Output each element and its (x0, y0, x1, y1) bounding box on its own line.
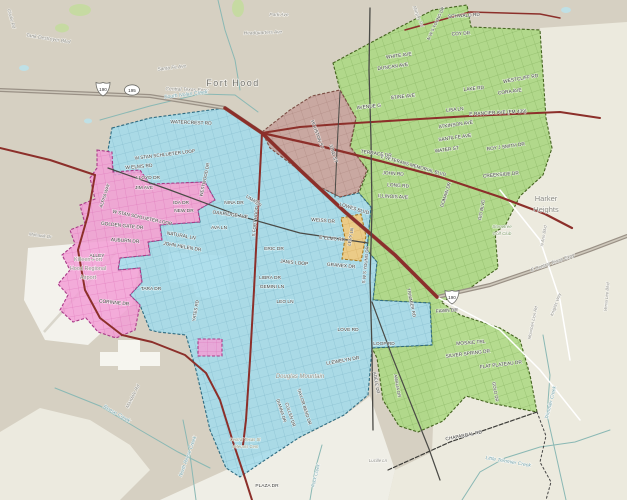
pond-1 (84, 119, 92, 124)
map-label-golf-club: Golf Club (493, 231, 512, 236)
map-label-fort-hood: Fort Hood (206, 78, 260, 88)
park-area-0 (69, 4, 91, 16)
map-label-loop-rd: LOOP RD (373, 341, 395, 347)
map-label-nina-dr: NINA DR (224, 200, 244, 206)
map-label-tara-dr: TARA DR (141, 286, 162, 292)
map-label-eric-dr: ERIC DR (264, 246, 284, 252)
highway-shield-number: 195 (128, 88, 136, 93)
map-label-alley: ALLEY (90, 253, 106, 259)
map-label-park-ave: Park Ave (269, 12, 289, 18)
map-label-heights: Heights (533, 205, 559, 214)
map-label-airport: Airport (80, 275, 97, 281)
district-pink-annex-streets (198, 339, 222, 356)
map-label-plaza-dr: PLAZA DR (255, 483, 279, 489)
map-label-stonetree: Stonetree (492, 224, 512, 229)
highway-shield-number: 190 (99, 87, 107, 92)
map-label-veterans-cem: Veterans Cem (232, 444, 259, 449)
highway-shield-number: 190 (448, 295, 456, 300)
map-label-hood-regional: Hood Regional (70, 266, 106, 272)
map-label-harker: Harker (535, 194, 558, 203)
district-pink-annex[interactable] (198, 339, 222, 356)
map-label-leo-ln: LEO LN (276, 299, 294, 305)
map-label-jim-ave: JIM AVE (135, 185, 153, 191)
map-label-new-dr: NEW DR (174, 208, 194, 214)
map-label-gemini-ln: GEMINI LN (260, 284, 285, 290)
map-label-central-texas-st: Central Texas St (230, 437, 262, 442)
pond-2 (561, 7, 571, 13)
highway-shield-195-1: 195 (125, 85, 140, 95)
map-label-ava-ln: AVA LN (211, 225, 228, 231)
map-label-ida-dr: IDA DR (173, 200, 190, 206)
park-area-1 (55, 24, 69, 33)
map-canvas[interactable]: Fort HoodCentral Texas ExpyE Central Tex… (0, 0, 627, 500)
pond-0 (19, 65, 29, 71)
map-label-douglas-mountain: Douglas Mountain (276, 374, 325, 380)
map-label-libra-dr: LIBRA DR (259, 275, 281, 281)
map-label-lloyd-dr: LLOYD DR (136, 175, 161, 181)
map-svg: Fort HoodCentral Texas ExpyE Central Tex… (0, 0, 627, 500)
map-label-lucille-ln: Lucille Ln (369, 458, 388, 463)
map-label-love-rd: LOVE RD (337, 327, 359, 333)
